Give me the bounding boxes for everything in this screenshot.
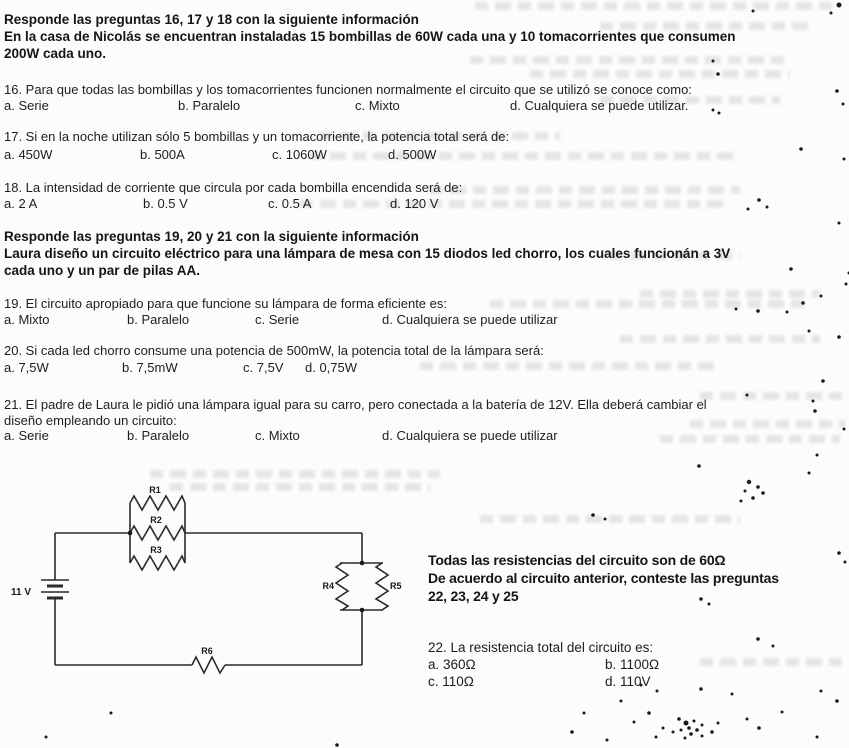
bleedthrough-noise (530, 70, 790, 78)
option-18-c: c. 0.5 A (268, 196, 311, 211)
option-22-c: c. 110Ω (428, 674, 474, 689)
option-17-b: b. 500A (140, 147, 185, 162)
resistor-r2 (130, 526, 185, 540)
section1-line3: 200W cada uno. (4, 45, 736, 62)
question-18-text: 18. La intensidad de corriente que circu… (4, 180, 462, 196)
resistor-r3 (130, 556, 185, 570)
circuit-note-line1: Todas las resistencias del circuito son … (428, 551, 779, 569)
bleedthrough-noise (480, 515, 740, 523)
section1-intro: Responde las preguntas 16, 17 y 18 con l… (4, 11, 736, 62)
section2-header: Responde las preguntas 19, 20 y 21 con l… (4, 228, 730, 245)
question-16-options: a. Serie b. Paralelo c. Mixto d. Cualqui… (0, 98, 849, 115)
section1-line2: En la casa de Nicolás se encuentran inst… (4, 28, 736, 45)
section2-line3: cada uno y un par de pilas AA. (4, 262, 730, 279)
bleedthrough-noise (690, 420, 845, 428)
bleedthrough-noise (640, 290, 820, 298)
option-20-d: d. 0,75W (305, 360, 357, 375)
junction-dots (128, 531, 365, 613)
option-20-c: c. 7,5V (243, 360, 283, 375)
bleedthrough-noise (475, 2, 835, 10)
option-22-d: d. 110V (605, 674, 651, 689)
option-21-c: c. Mixto (255, 428, 300, 443)
option-19-b: b. Paralelo (127, 312, 189, 327)
resistor-r2-label: R2 (150, 515, 162, 525)
question-17-options: a. 450W b. 500A c. 1060W d. 500W (0, 147, 849, 164)
question-22-text: 22. La resistencia total del circuito es… (428, 640, 653, 655)
option-16-c: c. Mixto (355, 98, 400, 113)
battery-voltage-label: 11 V (11, 587, 31, 598)
question-21-options: a. Serie b. Paralelo c. Mixto d. Cualqui… (0, 428, 849, 445)
option-16-a: a. Serie (4, 98, 49, 113)
option-18-d: d. 120 V (390, 196, 438, 211)
resistor-r3-label: R3 (150, 545, 162, 555)
resistor-r4 (336, 563, 348, 610)
question-22-options-row1: a. 360Ω b. 1100Ω (0, 657, 849, 674)
question-20-text: 20. Si cada led chorro consume una poten… (4, 343, 544, 359)
option-18-a: a. 2 A (4, 196, 37, 211)
section2-line2: Laura diseño un circuito eléctrico para … (4, 245, 730, 262)
resistor-r6-label: R6 (201, 646, 213, 656)
resistor-r1-label: R1 (149, 485, 161, 495)
option-22-a: a. 360Ω (428, 657, 476, 672)
bleedthrough-noise (700, 392, 845, 400)
scanned-exam-page: Responde las preguntas 16, 17 y 18 con l… (0, 0, 849, 748)
bleedthrough-noise (490, 300, 810, 308)
section1-header: Responde las preguntas 16, 17 y 18 con l… (4, 11, 736, 28)
option-19-c: c. Serie (255, 312, 299, 327)
bleedthrough-noise (430, 186, 740, 194)
resistor-r5 (376, 563, 388, 610)
option-21-d: d. Cualquiera se puede utilizar (382, 428, 558, 443)
scan-noise-specks (0, 0, 2, 2)
resistor-r4-label: R4 (322, 581, 334, 591)
option-16-d: d. Cualquiera se puede utilizar. (510, 98, 689, 113)
option-17-d: d. 500W (388, 147, 436, 162)
question-17-text: 17. Si en la noche utilizan sólo 5 bombi… (4, 129, 509, 145)
circuit-note: Todas las resistencias del circuito son … (428, 551, 779, 605)
question-22-options-row2: c. 110Ω d. 110V (0, 674, 849, 691)
option-20-a: a. 7,5W (4, 360, 49, 375)
option-20-b: b. 7,5mW (122, 360, 178, 375)
option-18-b: b. 0.5 V (143, 196, 188, 211)
option-22-b: b. 1100Ω (605, 657, 659, 672)
option-17-c: c. 1060W (272, 147, 327, 162)
option-19-d: d. Cualquiera se puede utilizar (382, 312, 558, 327)
resistor-r5-label: R5 (390, 581, 402, 591)
option-16-b: b. Paralelo (178, 98, 240, 113)
resistor-r1 (130, 496, 185, 510)
question-21-text-line2: diseño empleando un circuito: (4, 413, 177, 429)
option-19-a: a. Mixto (4, 312, 50, 327)
option-21-b: b. Paralelo (127, 428, 189, 443)
bleedthrough-noise (620, 335, 820, 343)
circuit-note-line2: De acuerdo al circuito anterior, contest… (428, 569, 779, 587)
section2-intro: Responde las preguntas 19, 20 y 21 con l… (4, 228, 730, 279)
question-18-options: a. 2 A b. 0.5 V c. 0.5 A d. 120 V (0, 196, 849, 213)
option-21-a: a. Serie (4, 428, 49, 443)
question-19-text: 19. El circuito apropiado para que funci… (4, 296, 447, 312)
question-21-text-line1: 21. El padre de Laura le pidió una lámpa… (4, 397, 707, 413)
question-19-options: a. Mixto b. Paralelo c. Serie d. Cualqui… (0, 312, 849, 329)
question-16-text: 16. Para que todas las bombillas y los t… (4, 82, 692, 98)
option-17-a: a. 450W (4, 147, 52, 162)
circuit-wires (55, 496, 388, 673)
circuit-note-line3: 22, 23, 24 y 25 (428, 587, 779, 605)
question-20-options: a. 7,5W b. 7,5mW c. 7,5V d. 0,75W (0, 360, 849, 377)
battery-icon (41, 580, 69, 598)
